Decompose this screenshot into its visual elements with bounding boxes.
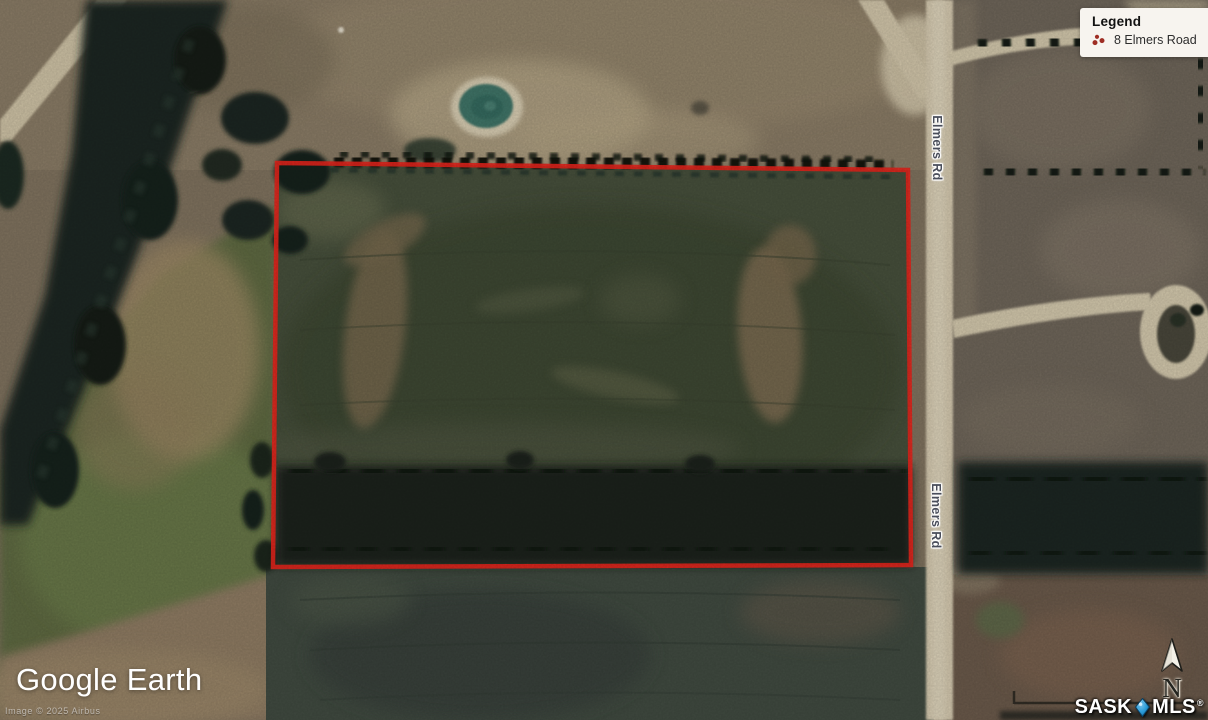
listing-marker-icon [1092,34,1107,47]
legend-item-label: 8 Elmers Road [1114,33,1197,47]
legend-item: 8 Elmers Road [1092,33,1200,47]
google-earth-logo-earth: Earth [127,662,203,697]
sask-mls-logo-prefix: SASK [1075,696,1133,719]
google-earth-logo: GoogleEarth [16,662,202,698]
road-label-elmers-rd: Elmers Rd [929,483,943,548]
google-earth-logo-google: Google [16,662,118,697]
satellite-imagery [0,0,1208,720]
legend-title: Legend [1092,14,1200,29]
mls-pin-icon [1135,698,1150,717]
north-arrow-icon [1160,638,1184,674]
road-label-elmers-rd: Elmers Rd [930,115,944,180]
sask-mls-logo-suffix: MLS [1152,696,1196,719]
legend-panel: Legend 8 Elmers Road [1080,8,1208,57]
compass: N [1154,638,1190,702]
satellite-map[interactable]: Elmers Rd Elmers Rd Legend 8 Elmers Road… [0,0,1208,720]
imagery-attribution: Image © 2025 Airbus [5,706,101,716]
sask-mls-logo-registered: ® [1197,698,1204,708]
sask-mls-logo: SASK MLS ® [1075,696,1204,719]
grain-overlay [0,0,1208,720]
